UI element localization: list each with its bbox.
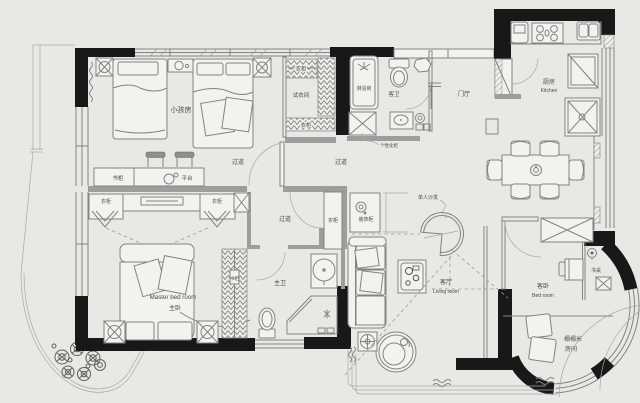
- svg-text:衣柜: 衣柜: [295, 65, 307, 73]
- svg-text:装饰柜: 装饰柜: [358, 216, 373, 223]
- svg-text:门厅: 门厅: [458, 90, 470, 98]
- svg-text:衣柜: 衣柜: [300, 121, 312, 129]
- svg-text:书桌: 书桌: [591, 267, 601, 274]
- svg-text:衣柜: 衣柜: [328, 217, 338, 224]
- svg-text:Kitchen: Kitchen: [541, 88, 558, 94]
- svg-text:主卧: 主卧: [169, 304, 181, 312]
- svg-text:试衣间: 试衣间: [293, 91, 310, 99]
- svg-text:衣柜: 衣柜: [212, 198, 222, 205]
- svg-text:过道: 过道: [232, 158, 244, 166]
- svg-text:个性化柜: 个性化柜: [380, 142, 398, 149]
- svg-text:平台: 平台: [181, 174, 193, 182]
- svg-text:衣柜: 衣柜: [101, 198, 111, 205]
- svg-text:书柜: 书柜: [230, 275, 239, 282]
- svg-text:单人沙发: 单人沙发: [418, 194, 438, 201]
- svg-text:过道: 过道: [279, 215, 291, 223]
- svg-text:淋浴房: 淋浴房: [356, 85, 371, 92]
- svg-text:小孩房: 小孩房: [171, 105, 192, 114]
- svg-text:客厅: 客厅: [440, 278, 452, 286]
- svg-text:过道: 过道: [335, 158, 347, 166]
- svg-text:客卧: 客卧: [537, 282, 549, 290]
- svg-text:Master bed room: Master bed room: [150, 294, 197, 301]
- svg-text:Bed room: Bed room: [532, 293, 554, 299]
- svg-text:厨房: 厨房: [543, 78, 555, 86]
- svg-text:书柜: 书柜: [112, 174, 124, 182]
- svg-text:客卫: 客卫: [388, 90, 400, 98]
- svg-text:主卫: 主卫: [274, 279, 286, 287]
- svg-text:Living room: Living room: [433, 289, 459, 295]
